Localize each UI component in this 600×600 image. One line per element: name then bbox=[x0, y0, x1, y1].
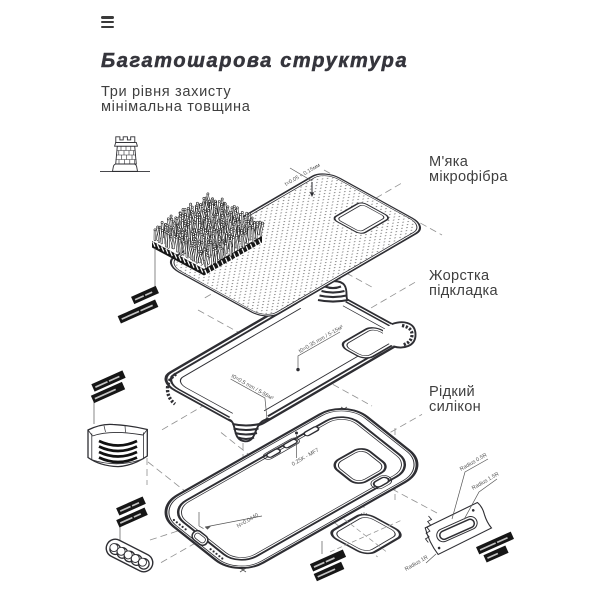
svg-text:Radius 1R: Radius 1R bbox=[404, 555, 429, 573]
svg-text:Radius 1.5R: Radius 1.5R bbox=[471, 471, 500, 491]
svg-text:Radius 0.5R: Radius 0.5R bbox=[459, 452, 488, 472]
